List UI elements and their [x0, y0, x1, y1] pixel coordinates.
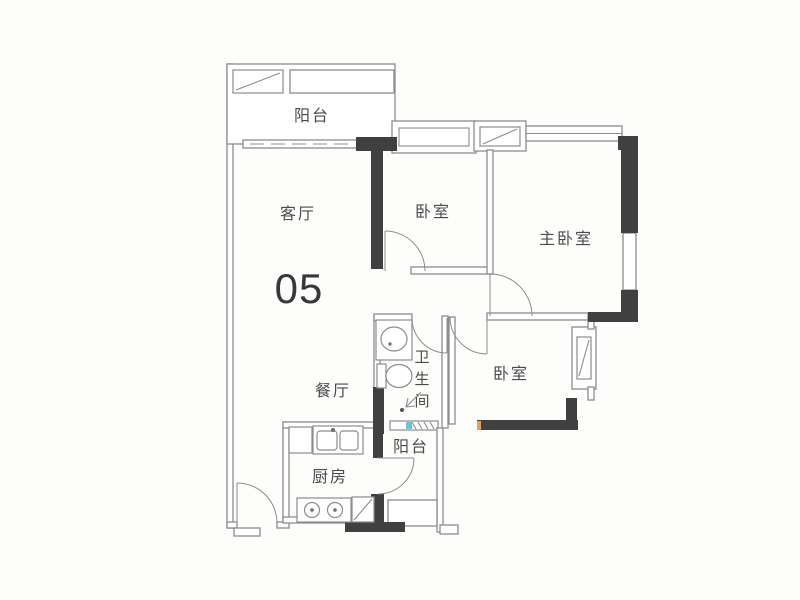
label-kitchen: 厨房: [312, 468, 348, 486]
label-dining-room: 餐厅: [315, 382, 351, 400]
wall-thick: [566, 398, 577, 422]
balcony-door-arc: [378, 458, 414, 494]
wall-thick: [621, 136, 638, 233]
wall: [449, 317, 455, 424]
washing-machine-icon: [233, 70, 283, 93]
cyan-tick: [406, 422, 412, 429]
entry-door-arc: [237, 483, 277, 523]
label-bathroom-char-3: 间: [414, 393, 429, 410]
ac-unit-side-icon: [577, 337, 591, 379]
kitchen-cabinet-icon: [289, 427, 312, 453]
wall-thick: [477, 420, 578, 430]
label-bedroom-top: 卧室: [415, 203, 451, 221]
bathroom-sink-icon: [376, 320, 412, 360]
drain-dot: [400, 408, 404, 412]
wall: [283, 422, 289, 522]
burner-left-dot: [310, 508, 314, 512]
fridge-icon: [352, 497, 374, 522]
wall-thick: [345, 522, 405, 532]
wall-thick: [373, 387, 384, 434]
wall-thick: [371, 151, 383, 269]
cabinet-box: [289, 427, 312, 453]
toilet-bowl: [386, 365, 412, 388]
burner-right-dot: [333, 508, 337, 512]
wall-stub: [440, 525, 458, 534]
label-bathroom-char-2: 生: [414, 371, 429, 388]
label-bathroom-vertical: 卫 生 间: [414, 349, 429, 410]
wall-thick: [356, 137, 397, 151]
sink-basin: [381, 327, 407, 351]
label-balcony-top: 阳台: [294, 107, 330, 125]
sink-basin-right: [340, 431, 358, 450]
kitchen-sink-icon: [313, 426, 363, 454]
bay-window: [392, 121, 476, 153]
balcony-shelf: [290, 70, 394, 93]
unit-number: 05: [275, 265, 324, 312]
wall: [487, 150, 493, 274]
wall: [227, 522, 237, 528]
floor-plan-page: 阳台 客厅 05 卧室 主卧室 餐厅 卧室 厨房 阳台 卫 生 间: [0, 0, 800, 600]
wall: [437, 428, 443, 532]
faucet: [331, 428, 335, 432]
label-bathroom-char-1: 卫: [414, 349, 429, 366]
wall: [487, 313, 588, 320]
label-living-room: 客厅: [280, 205, 316, 223]
ac-unit-icon: [480, 127, 520, 146]
bedroom-top-door-arc: [385, 231, 425, 271]
wall-stub: [234, 528, 260, 536]
label-master-bedroom: 主卧室: [539, 230, 593, 248]
label-bedroom-right: 卧室: [493, 365, 529, 383]
wall-thick: [373, 430, 383, 458]
master-door-arc: [490, 274, 532, 316]
label-balcony-bottom: 阳台: [393, 438, 429, 456]
wall: [588, 387, 594, 400]
sink-drain: [388, 342, 391, 345]
toilet-tank: [377, 364, 386, 388]
toilet-icon: [377, 364, 412, 388]
floor-plan-drawing: 阳台 客厅 05 卧室 主卧室 餐厅 卧室 厨房 阳台 卫 生 间: [0, 0, 800, 600]
window: [623, 233, 636, 290]
wall: [411, 267, 492, 274]
sink-basin-left: [317, 431, 337, 450]
wall-thick: [588, 312, 638, 322]
orange-tick: [477, 421, 481, 430]
stove-icon: [297, 498, 351, 522]
